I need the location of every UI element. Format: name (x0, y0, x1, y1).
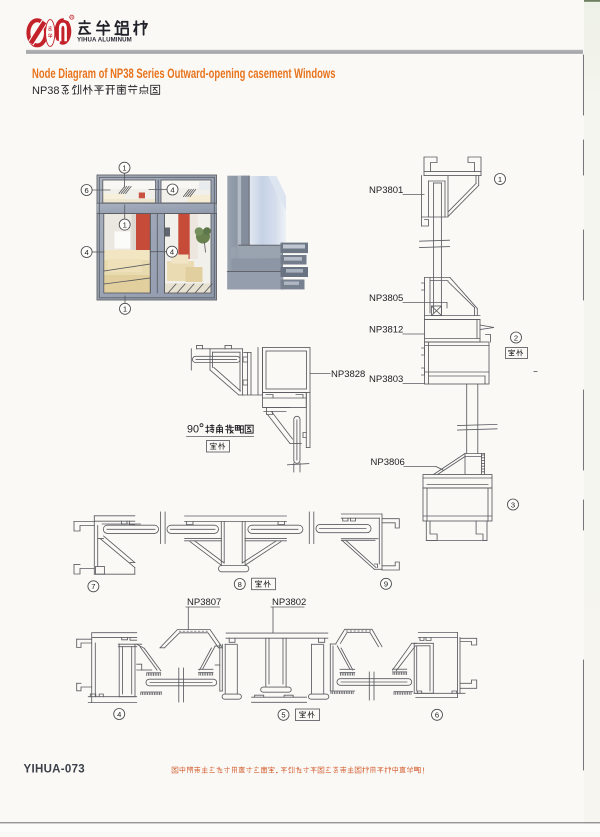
svg-text:R: R (70, 15, 73, 20)
svg-text:1: 1 (122, 164, 126, 173)
svg-text:NP3828: NP3828 (331, 369, 365, 380)
svg-text:NP38: NP38 (32, 85, 60, 97)
svg-text:NP3806: NP3806 (371, 457, 405, 468)
svg-text:6: 6 (84, 186, 88, 195)
svg-text:4: 4 (170, 185, 174, 194)
svg-text:5: 5 (281, 711, 285, 720)
svg-text:Node Diagram of NP38 Series Ou: Node Diagram of NP38 Series Outward-open… (32, 65, 336, 81)
svg-text:4: 4 (170, 248, 174, 257)
svg-text:NP3801: NP3801 (369, 185, 403, 196)
svg-text:NP3812: NP3812 (369, 325, 403, 336)
svg-text:4: 4 (84, 248, 88, 257)
svg-text:YIHUA-073: YIHUA-073 (24, 764, 86, 776)
svg-text:NP3802: NP3802 (272, 597, 306, 608)
svg-text:8: 8 (238, 580, 242, 589)
svg-text:2: 2 (514, 333, 518, 342)
svg-text:NP3803: NP3803 (369, 374, 403, 385)
svg-text:7: 7 (91, 582, 95, 591)
svg-text:1: 1 (123, 305, 127, 314)
svg-text:!: ! (422, 767, 424, 776)
svg-text:NP3805: NP3805 (369, 293, 403, 304)
svg-text:1: 1 (498, 175, 502, 184)
svg-text:6: 6 (435, 711, 439, 720)
svg-text:NP3807: NP3807 (187, 597, 221, 608)
svg-text:4: 4 (117, 710, 121, 719)
svg-text:3: 3 (511, 500, 515, 509)
svg-text:1: 1 (123, 220, 127, 229)
svg-text:YIHUA ALUMINUM: YIHUA ALUMINUM (77, 36, 132, 43)
svg-text:9: 9 (384, 580, 388, 589)
svg-text:90: 90 (187, 424, 199, 436)
